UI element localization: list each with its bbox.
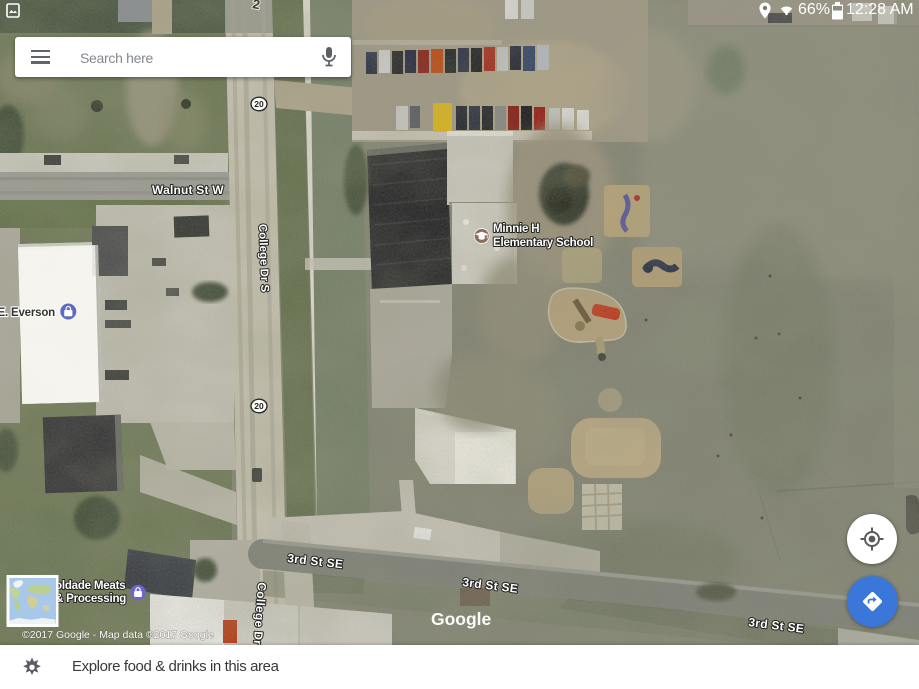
svg-text:oldade Meats: oldade Meats — [55, 580, 125, 592]
svg-text:Elementary School: Elementary School — [493, 237, 593, 249]
svg-text:College Dr S: College Dr S — [256, 224, 270, 293]
svg-text:20: 20 — [254, 401, 264, 411]
svg-text:20: 20 — [254, 99, 264, 109]
svg-text:& Processing: & Processing — [55, 593, 126, 605]
svg-text:Walnut St W: Walnut St W — [152, 183, 224, 197]
svg-text:©2017 Google - Map data ©2017: ©2017 Google - Map data ©2017 Google — [22, 629, 214, 641]
svg-text:Google: Google — [431, 609, 492, 629]
svg-text:Minnie H: Minnie H — [493, 223, 539, 235]
svg-text:I.E. Everson: I.E. Everson — [0, 307, 55, 319]
